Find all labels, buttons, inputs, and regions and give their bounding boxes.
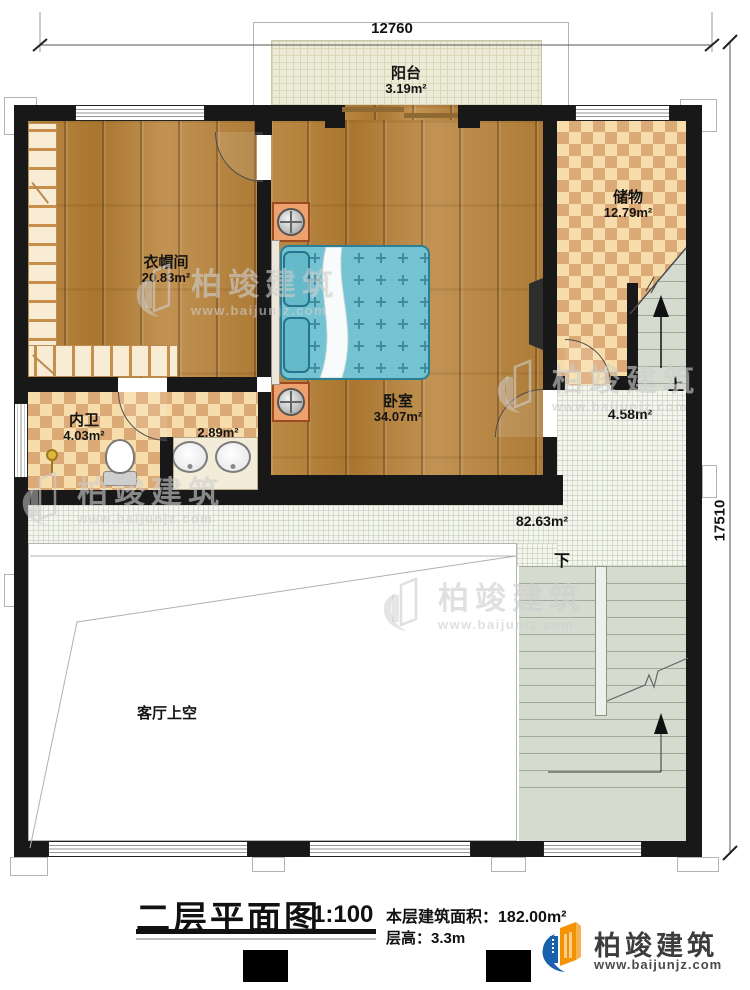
room-area-stair-landing: 4.58m² [608, 406, 652, 422]
stair-landing-lower [519, 804, 686, 841]
room-label-bedroom: 卧室 [383, 390, 413, 411]
room-area-corridor: 82.63m² [516, 513, 568, 529]
bed-headboard [271, 240, 280, 385]
sink-icon [215, 441, 251, 473]
floor-drain-stem [51, 461, 53, 473]
room-label-balcony: 阳台 [391, 62, 421, 83]
window [543, 841, 642, 857]
room-label-living-void: 客厅上空 [137, 702, 197, 723]
pillow [283, 317, 310, 373]
stair-up-label: 上 [668, 371, 684, 395]
dimension-right: 17510 [712, 491, 729, 551]
legend-square [243, 950, 288, 982]
wall-segment [471, 841, 543, 857]
wall-segment [14, 478, 28, 841]
wall-segment [686, 105, 702, 841]
wall-segment [257, 180, 271, 377]
room-area-cloakroom: 20.83m² [142, 270, 190, 285]
sliding-door-panel [342, 107, 404, 112]
room-area-vanity: 2.89m² [197, 425, 238, 440]
drawing-scale: 1:100 [312, 901, 373, 929]
floor-drain-icon [46, 449, 58, 461]
sliding-door-panel [404, 113, 466, 118]
wall-segment [543, 105, 557, 390]
company-logo-url: www.baijunjz.com [594, 957, 722, 972]
wall-segment [467, 105, 575, 121]
tv-icon [529, 278, 543, 350]
corridor-area [517, 543, 557, 567]
floor-area-line: 本层建筑面积：182.00m² [386, 903, 567, 927]
floor-area-label: 本层建筑面积： [386, 909, 498, 926]
wall-segment [248, 841, 309, 857]
wall-segment [160, 437, 173, 490]
living-room-void [28, 543, 517, 841]
room-area-balcony: 3.19m² [385, 81, 426, 96]
wall-segment [255, 105, 272, 135]
dimension-top: 12760 [371, 20, 413, 37]
wall-segment [14, 105, 28, 403]
room-label-cloakroom: 衣帽间 [143, 251, 188, 272]
window [575, 105, 670, 121]
window-sill [252, 857, 285, 872]
wardrobe-rod [32, 354, 56, 376]
corridor-area [28, 505, 557, 543]
floor-height-value: 3.3m [431, 930, 465, 947]
toilet-icon [105, 439, 135, 474]
wall-segment [642, 841, 702, 857]
floor-height-label: 层高： [386, 930, 431, 947]
room-label-storage: 储物 [613, 186, 643, 207]
title-underline [136, 929, 376, 934]
stair-down-label: 下 [554, 547, 570, 571]
window [48, 841, 248, 857]
wall-segment [14, 377, 118, 392]
lamp-icon [277, 388, 305, 416]
stair-railing [595, 566, 607, 716]
sink-icon [172, 441, 208, 473]
window-sill [10, 857, 48, 876]
window [309, 841, 471, 857]
wall-segment [167, 377, 257, 392]
wall-segment [14, 490, 563, 505]
nightstand [272, 202, 310, 242]
company-logo-icon [542, 920, 590, 978]
pillow [283, 251, 310, 307]
room-area-storage: 12.79m² [604, 205, 652, 220]
floor-height-line: 层高：3.3m [386, 927, 465, 948]
wardrobe-bottom [28, 345, 178, 377]
legend-square [486, 950, 531, 982]
room-area-bathroom: 4.03m² [63, 428, 104, 443]
wall-segment [543, 437, 557, 490]
wardrobe-left [28, 123, 57, 350]
wall-segment [543, 376, 565, 390]
room-area-bedroom: 34.07m² [374, 409, 422, 424]
title-underline-thin [136, 938, 376, 940]
window [14, 403, 28, 478]
wall-segment [14, 841, 48, 857]
room-label-bathroom: 内卫 [69, 409, 99, 430]
wardrobe-rod [31, 182, 49, 204]
nightstand [272, 382, 310, 422]
wall-segment [627, 283, 638, 390]
wall-segment [271, 475, 563, 490]
window-sill [677, 857, 719, 872]
window-sill [491, 857, 526, 872]
window [75, 105, 205, 121]
lamp-icon [277, 208, 305, 236]
floor-plan-page: 12760 17510 阳台 3.19m² 储物 12.79m² 衣帽间 20.… [0, 0, 750, 990]
wall-segment [258, 392, 271, 490]
